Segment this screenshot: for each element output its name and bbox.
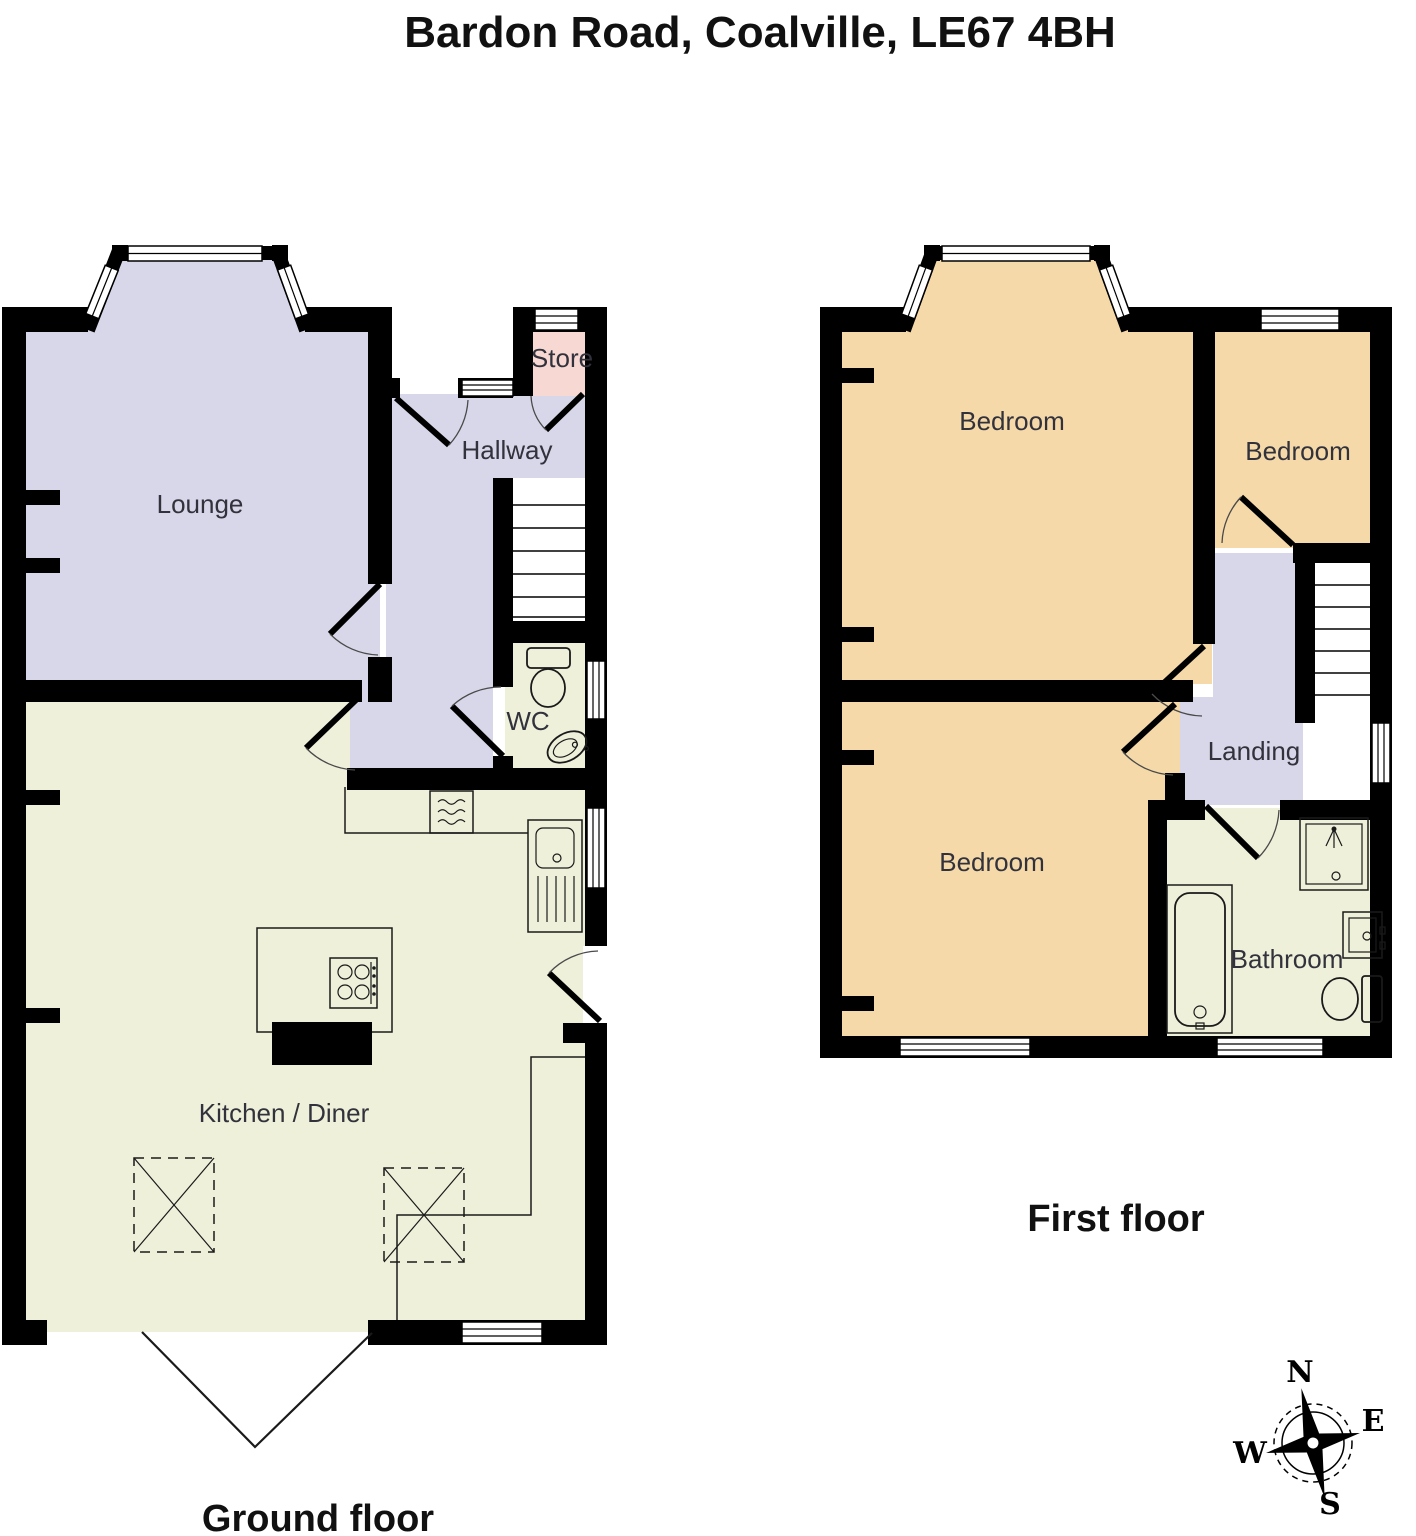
stair-void — [1303, 723, 1370, 803]
floor-plan-page: Lounge Hallway Store WC Kitchen / Diner … — [0, 0, 1416, 1536]
hallway-label: Hallway — [461, 435, 552, 465]
first-floor-plan: Bedroom Bedroom Bedroom Landing Bathroom… — [820, 245, 1392, 1240]
ground-floor-room-fills — [26, 252, 585, 1332]
bedroom-rear-label: Bedroom — [939, 847, 1045, 877]
kitchen-side-window — [587, 808, 605, 888]
porch-window — [462, 380, 513, 396]
bathroom-label: Bathroom — [1231, 944, 1344, 974]
landing-label: Landing — [1208, 736, 1301, 766]
compass-north-label: N — [1286, 1355, 1313, 1390]
bathroom-window — [1217, 1038, 1323, 1056]
floor-plan-drawing: Lounge Hallway Store WC Kitchen / Diner … — [0, 0, 1416, 1536]
kitchen-diner-label: Kitchen / Diner — [199, 1098, 370, 1128]
island-unit-block — [272, 1022, 372, 1065]
lounge-label: Lounge — [157, 489, 244, 519]
ground-floor-plan: Lounge Hallway Store WC Kitchen / Diner … — [2, 245, 609, 1536]
landing-floor — [1213, 553, 1303, 805]
kitchen-rear-window — [462, 1322, 542, 1343]
bedroom-front-bay-floor — [906, 253, 1128, 330]
bedroom-small-floor — [1215, 318, 1392, 548]
landing-window — [1372, 723, 1390, 783]
store-window — [535, 309, 578, 330]
compass-east-label: E — [1362, 1404, 1385, 1439]
ground-floor-stairs — [513, 478, 585, 625]
page-title: Bardon Road, Coalville, LE67 4BH — [404, 8, 1116, 57]
lounge-bay-floor — [92, 252, 305, 330]
compass-south-label: S — [1319, 1487, 1341, 1522]
wc-label: WC — [506, 706, 549, 736]
wc-window — [587, 661, 605, 719]
bedroom-small-label: Bedroom — [1245, 436, 1351, 466]
bedroom-front-floor — [842, 318, 1212, 684]
first-floor-caption: First floor — [1027, 1198, 1205, 1240]
store-label: Store — [531, 343, 593, 373]
bathroom-floor — [1160, 808, 1385, 1038]
patio-door-marker — [142, 1332, 372, 1447]
ground-floor-caption: Ground floor — [202, 1498, 434, 1536]
stair-well — [1315, 563, 1370, 723]
bedroom-front-label: Bedroom — [959, 406, 1065, 436]
bedroom-rear-window — [900, 1038, 1030, 1056]
compass-rose-icon: N E W S — [1232, 1355, 1384, 1522]
bedroom-small-window — [1261, 309, 1339, 330]
compass-west-label: W — [1232, 1436, 1268, 1471]
